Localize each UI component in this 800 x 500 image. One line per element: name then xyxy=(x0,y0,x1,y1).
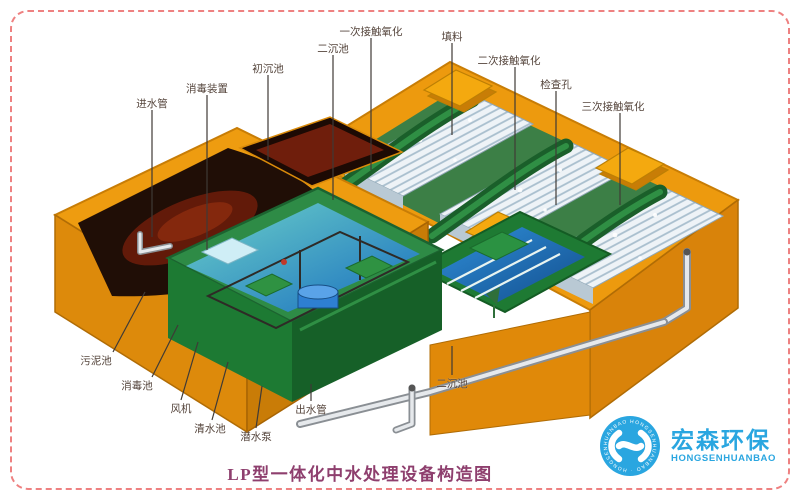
label-secondary-sedimentation-tank-top: 二沉池 xyxy=(317,44,349,55)
label-secondary-sedimentation-tank-bottom: 二沉池 xyxy=(436,379,468,390)
label-disinfection-tank: 消毒池 xyxy=(121,381,153,392)
diagram-title: LP型一体化中水处理设备构造图 xyxy=(227,460,492,485)
logo-name-en: HONGSENHUANBAO xyxy=(671,454,776,464)
label-second-contact-oxidation: 二次接触氧化 xyxy=(478,56,541,67)
label-first-contact-oxidation: 一次接触氧化 xyxy=(340,27,403,38)
label-sludge-tank: 污泥池 xyxy=(80,356,112,367)
label-third-contact-oxidation: 三次接触氧化 xyxy=(582,102,645,113)
diagram-page: 进水管 消毒装置 初沉池 二沉池 一次接触氧化 填料 二次接触氧化 检查孔 三次… xyxy=(0,0,800,500)
label-clear-water-tank: 清水池 xyxy=(194,424,226,435)
label-packing-media: 填料 xyxy=(442,32,463,43)
label-outlet-pipe: 出水管 xyxy=(295,405,327,416)
pump-unit xyxy=(298,285,338,308)
logo-name-cn: 宏森环保 xyxy=(671,428,776,452)
label-disinfection-device: 消毒装置 xyxy=(186,84,228,95)
label-inlet-pipe: 进水管 xyxy=(136,99,168,110)
label-fan: 风机 xyxy=(171,404,192,415)
company-logo: HONGSENHUANBAO · HONGSENHUANBAO · 宏森环保 H… xyxy=(598,414,776,478)
logo-mark-icon: HONGSENHUANBAO · HONGSENHUANBAO · xyxy=(598,414,662,478)
label-primary-sedimentation-tank: 初沉池 xyxy=(252,64,284,75)
label-inspection-hole: 检查孔 xyxy=(540,80,572,91)
label-submersible-pump: 潜水泵 xyxy=(240,432,272,443)
